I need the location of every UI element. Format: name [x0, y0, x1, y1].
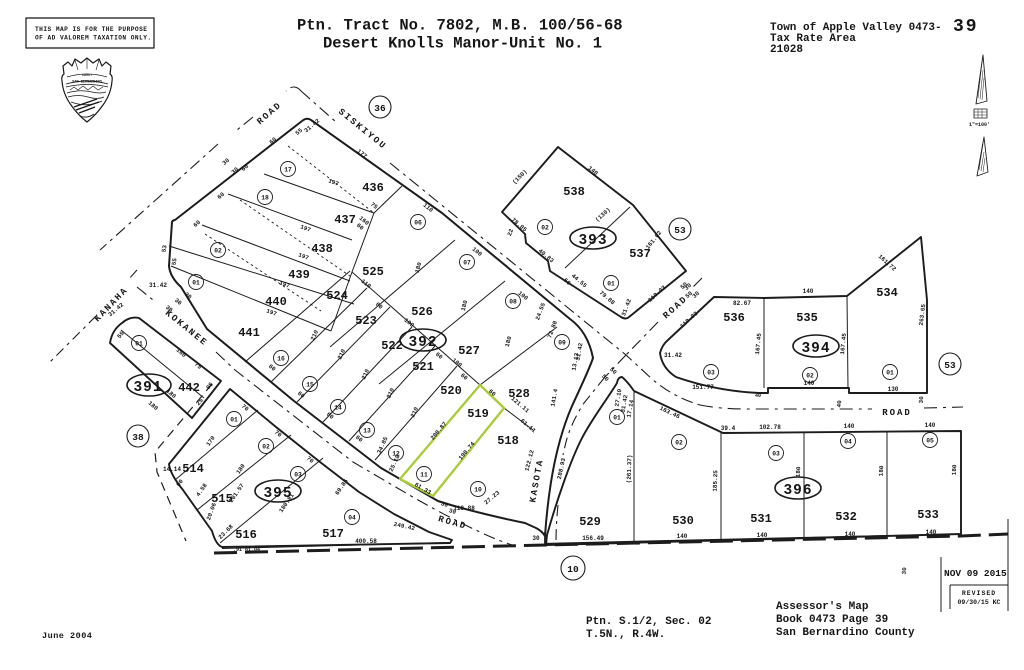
- svg-text:60: 60: [216, 191, 226, 201]
- svg-text:NOV 09 2015: NOV 09 2015: [944, 568, 1007, 579]
- svg-text:01: 01: [135, 341, 143, 348]
- svg-text:210: 210: [409, 406, 420, 419]
- svg-text:10: 10: [567, 564, 579, 575]
- svg-text:ROAD: ROAD: [255, 100, 284, 127]
- svg-text:38: 38: [132, 432, 144, 443]
- svg-text:529: 529: [579, 515, 601, 529]
- svg-text:60: 60: [296, 390, 306, 400]
- svg-text:523: 523: [355, 314, 377, 328]
- svg-text:140: 140: [757, 532, 768, 539]
- svg-text:531: 531: [750, 512, 772, 526]
- svg-text:40: 40: [755, 393, 761, 399]
- svg-text:40: 40: [836, 400, 844, 408]
- svg-text:140: 140: [845, 531, 856, 538]
- svg-text:185.25: 185.25: [712, 470, 720, 492]
- svg-text:60: 60: [267, 363, 277, 373]
- svg-text:Ptn. S.1/2, Sec. 02: Ptn. S.1/2, Sec. 02: [586, 616, 711, 628]
- svg-text:53: 53: [944, 360, 956, 371]
- svg-text:02: 02: [541, 225, 549, 232]
- svg-text:Book 0473 Page 39: Book 0473 Page 39: [776, 614, 888, 626]
- svg-text:San Bernardino County: San Bernardino County: [776, 627, 915, 639]
- svg-text:100: 100: [517, 290, 530, 302]
- svg-text:518: 518: [497, 434, 519, 448]
- svg-text:524: 524: [326, 289, 348, 303]
- svg-text:30: 30: [173, 297, 183, 307]
- svg-text:180: 180: [504, 335, 514, 348]
- svg-text:1"=100': 1"=100': [969, 122, 990, 128]
- svg-text:OF AD VALOREM TAXATION ONLY.: OF AD VALOREM TAXATION ONLY.: [35, 35, 152, 42]
- svg-text:521: 521: [412, 360, 434, 374]
- svg-text:40.83: 40.83: [537, 247, 556, 264]
- svg-text:39: 39: [953, 17, 979, 37]
- svg-text:532: 532: [835, 510, 857, 524]
- svg-text:438: 438: [311, 242, 333, 256]
- svg-text:180: 180: [878, 465, 885, 476]
- svg-text:Ptn. Tract No. 7802, M.B. 100/: Ptn. Tract No. 7802, M.B. 100/56-68: [297, 17, 623, 35]
- svg-text:396: 396: [783, 483, 812, 499]
- svg-text:39.4: 39.4: [721, 425, 736, 432]
- svg-text:400.58: 400.58: [355, 538, 377, 545]
- svg-text:36: 36: [374, 103, 386, 114]
- svg-text:534: 534: [876, 286, 898, 300]
- svg-text:27.23: 27.23: [483, 489, 502, 506]
- svg-text:60: 60: [240, 163, 250, 173]
- svg-text:01: 01: [607, 281, 615, 288]
- svg-text:08: 08: [509, 299, 517, 306]
- svg-text:391: 391: [133, 380, 162, 396]
- svg-text:530: 530: [672, 514, 694, 528]
- svg-text:55: 55: [116, 330, 126, 340]
- svg-text:01: 01: [230, 417, 238, 424]
- svg-text:30: 30: [230, 166, 240, 176]
- svg-text:156.49: 156.49: [582, 535, 604, 542]
- svg-text:60: 60: [192, 219, 202, 229]
- svg-text:517: 517: [322, 527, 344, 541]
- svg-text:14.14: 14.14: [163, 466, 181, 473]
- svg-text:180: 180: [460, 299, 470, 312]
- svg-text:60: 60: [487, 388, 497, 398]
- svg-text:30: 30: [901, 567, 909, 575]
- svg-text:180: 180: [147, 400, 160, 413]
- svg-text:197: 197: [297, 251, 310, 261]
- svg-text:140: 140: [926, 529, 937, 536]
- svg-text:30: 30: [448, 507, 457, 516]
- svg-text:Desert Knolls Manor-Unit No. 1: Desert Knolls Manor-Unit No. 1: [323, 35, 602, 53]
- svg-text:24.55: 24.55: [534, 301, 547, 321]
- svg-text:180: 180: [235, 462, 247, 475]
- svg-text:167.45: 167.45: [754, 332, 763, 355]
- svg-text:REVISED: REVISED: [962, 590, 996, 597]
- svg-text:44.55: 44.55: [570, 272, 589, 289]
- svg-text:02: 02: [675, 440, 683, 447]
- svg-text:526: 526: [411, 305, 433, 319]
- svg-text:13: 13: [363, 428, 371, 435]
- svg-text:55: 55: [170, 257, 178, 266]
- svg-text:520: 520: [440, 384, 462, 398]
- svg-text:03: 03: [772, 451, 780, 458]
- svg-text:180: 180: [414, 261, 424, 274]
- svg-text:210: 210: [336, 348, 347, 361]
- svg-text:210: 210: [360, 368, 371, 381]
- svg-text:13.13: 13.13: [571, 352, 581, 371]
- svg-text:01: 01: [613, 415, 621, 422]
- svg-text:60: 60: [268, 136, 278, 146]
- svg-text:20.06: 20.06: [205, 501, 218, 521]
- svg-text:61.33: 61.33: [413, 481, 432, 496]
- svg-text:61.11: 61.11: [519, 417, 538, 434]
- svg-text:180: 180: [795, 466, 802, 477]
- svg-text:17: 17: [284, 167, 292, 174]
- svg-text:436: 436: [362, 181, 384, 195]
- svg-text:04: 04: [844, 439, 852, 446]
- svg-text:21028: 21028: [770, 44, 803, 56]
- svg-text:538: 538: [563, 185, 585, 199]
- svg-text:100: 100: [451, 357, 464, 369]
- svg-text:KANAHA: KANAHA: [93, 285, 131, 324]
- svg-text:441: 441: [238, 326, 260, 340]
- svg-text:119.03: 119.03: [679, 310, 700, 330]
- svg-text:535: 535: [796, 311, 818, 325]
- svg-text:160: 160: [175, 347, 188, 360]
- svg-text:11: 11: [420, 472, 428, 479]
- svg-text:102.78: 102.78: [759, 424, 781, 431]
- svg-text:15: 15: [306, 382, 314, 389]
- svg-text:140: 140: [844, 423, 855, 430]
- svg-text:60: 60: [354, 434, 364, 444]
- svg-text:516: 516: [235, 528, 257, 542]
- svg-text:COUNTY: COUNTY: [82, 74, 92, 77]
- svg-text:442: 442: [178, 381, 200, 395]
- svg-text:ROAD: ROAD: [882, 408, 912, 418]
- svg-text:140: 140: [803, 288, 814, 295]
- svg-text:02: 02: [262, 444, 270, 451]
- svg-text:T.5N., R.4W.: T.5N., R.4W.: [586, 629, 665, 641]
- svg-text:140: 140: [804, 380, 815, 387]
- svg-text:22: 22: [506, 228, 515, 238]
- svg-text:151.77: 151.77: [692, 384, 714, 391]
- svg-text:30: 30: [440, 500, 449, 509]
- svg-text:167.45: 167.45: [839, 332, 848, 355]
- svg-text:263.65: 263.65: [918, 303, 928, 326]
- svg-text:02: 02: [806, 373, 814, 380]
- svg-text:393: 393: [578, 233, 607, 249]
- svg-text:30: 30: [532, 535, 540, 542]
- svg-text:18: 18: [261, 195, 269, 202]
- svg-text:30: 30: [691, 290, 701, 300]
- svg-text:50: 50: [608, 366, 618, 376]
- svg-text:SAN BERNARDINO: SAN BERNARDINO: [72, 81, 101, 85]
- svg-text:197: 197: [327, 177, 340, 187]
- svg-text:09/30/15 KC: 09/30/15 KC: [958, 599, 1001, 606]
- svg-text:140: 140: [677, 533, 688, 540]
- svg-text:01: 01: [192, 280, 200, 287]
- svg-text:190.74: 190.74: [457, 440, 477, 461]
- svg-text:31.42: 31.42: [664, 352, 682, 359]
- svg-text:527: 527: [458, 344, 480, 358]
- svg-text:03: 03: [707, 370, 715, 377]
- svg-text:25.18: 25.18: [388, 453, 402, 473]
- svg-text:110: 110: [422, 202, 435, 214]
- svg-text:60: 60: [459, 372, 469, 382]
- svg-text:30: 30: [918, 396, 926, 404]
- svg-text:439: 439: [288, 268, 310, 282]
- svg-text:130: 130: [888, 386, 899, 393]
- svg-text:140: 140: [925, 422, 936, 429]
- svg-text:141.4: 141.4: [550, 388, 560, 407]
- svg-text:533: 533: [917, 508, 939, 522]
- svg-text:14: 14: [334, 405, 342, 412]
- svg-text:06: 06: [414, 220, 422, 227]
- svg-text:392: 392: [408, 335, 437, 351]
- svg-text:60: 60: [325, 411, 335, 421]
- svg-text:07: 07: [463, 260, 471, 267]
- svg-text:Assessor's Map: Assessor's Map: [776, 601, 869, 613]
- svg-text:82.67: 82.67: [733, 300, 751, 307]
- svg-text:140: 140: [587, 165, 600, 177]
- svg-text:05: 05: [926, 438, 934, 445]
- svg-text:519: 519: [467, 407, 489, 421]
- svg-text:53: 53: [160, 244, 168, 253]
- svg-text:514: 514: [182, 462, 204, 476]
- svg-text:53: 53: [674, 225, 686, 236]
- svg-text:01: 01: [886, 370, 894, 377]
- svg-text:180: 180: [165, 388, 178, 401]
- svg-text:02: 02: [214, 248, 222, 255]
- svg-text:June 2004: June 2004: [42, 631, 92, 641]
- svg-text:31.42: 31.42: [149, 282, 167, 289]
- svg-text:16: 16: [277, 356, 285, 363]
- svg-text:75: 75: [193, 361, 203, 371]
- svg-text:03: 03: [294, 472, 302, 479]
- svg-text:180: 180: [951, 464, 958, 475]
- svg-text:.91 61.04: .91 61.04: [233, 547, 260, 553]
- svg-text:210: 210: [385, 387, 396, 400]
- svg-text:10: 10: [474, 487, 482, 494]
- svg-text:THIS MAP IS FOR THE PURPOSE: THIS MAP IS FOR THE PURPOSE: [35, 26, 147, 33]
- svg-text:4.58: 4.58: [195, 482, 209, 498]
- svg-text:09: 09: [558, 340, 566, 347]
- svg-text:536: 536: [723, 311, 745, 325]
- svg-text:69.85: 69.85: [334, 477, 350, 496]
- svg-text:30: 30: [221, 157, 231, 167]
- svg-text:ROAD: ROAD: [437, 514, 468, 532]
- svg-text:119.03: 119.03: [647, 284, 668, 304]
- svg-text:(261.37): (261.37): [626, 454, 634, 483]
- svg-text:200.87: 200.87: [429, 420, 449, 441]
- svg-text:394: 394: [801, 341, 830, 357]
- svg-text:525: 525: [362, 265, 384, 279]
- svg-text:04: 04: [348, 515, 356, 522]
- svg-text:437: 437: [334, 213, 356, 227]
- svg-text:(130): (130): [594, 206, 612, 223]
